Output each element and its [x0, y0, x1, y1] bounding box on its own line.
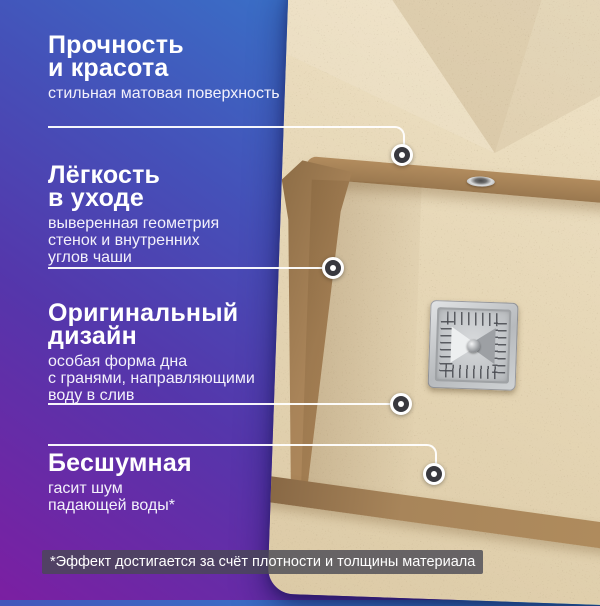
- callout-dot-icon: [322, 257, 344, 279]
- feature-description: стильная матовая поверхность: [48, 85, 280, 102]
- promo-card: Прочность и красота стильная матовая пов…: [0, 0, 600, 600]
- callout-dot-icon: [391, 144, 413, 166]
- feature-section-easy-care: Лёгкость в уходе выверенная геометрия ст…: [48, 164, 219, 266]
- feature-heading: Оригинальный дизайн: [48, 302, 255, 348]
- callout-dot-icon: [423, 463, 445, 485]
- drain-center-knob: [466, 339, 479, 352]
- dot-core: [399, 152, 405, 158]
- feature-description: особая форма дна с гранями, направляющим…: [48, 353, 255, 404]
- feature-heading: Прочность и красота: [48, 34, 280, 80]
- feature-section-original-design: Оригинальный дизайн особая форма дна с г…: [48, 302, 255, 404]
- drain-grate: [435, 307, 512, 384]
- feature-description: гасит шум падающей воды*: [48, 480, 192, 514]
- dot-core: [398, 401, 404, 407]
- callout-dot-icon: [390, 393, 412, 415]
- sink-photo: [267, 0, 600, 606]
- callout-line: [48, 126, 405, 150]
- callout-line: [48, 403, 390, 405]
- feature-description: выверенная геометрия стенок и внутренних…: [48, 215, 219, 266]
- feature-section-durability: Прочность и красота стильная матовая пов…: [48, 34, 280, 102]
- feature-heading: Лёгкость в уходе: [48, 164, 219, 210]
- callout-line: [48, 444, 437, 468]
- footnote: *Эффект достигается за счёт плотности и …: [42, 550, 483, 574]
- dot-core: [431, 471, 437, 477]
- callout-line: [48, 267, 322, 269]
- drain: [428, 300, 519, 391]
- dot-core: [330, 265, 336, 271]
